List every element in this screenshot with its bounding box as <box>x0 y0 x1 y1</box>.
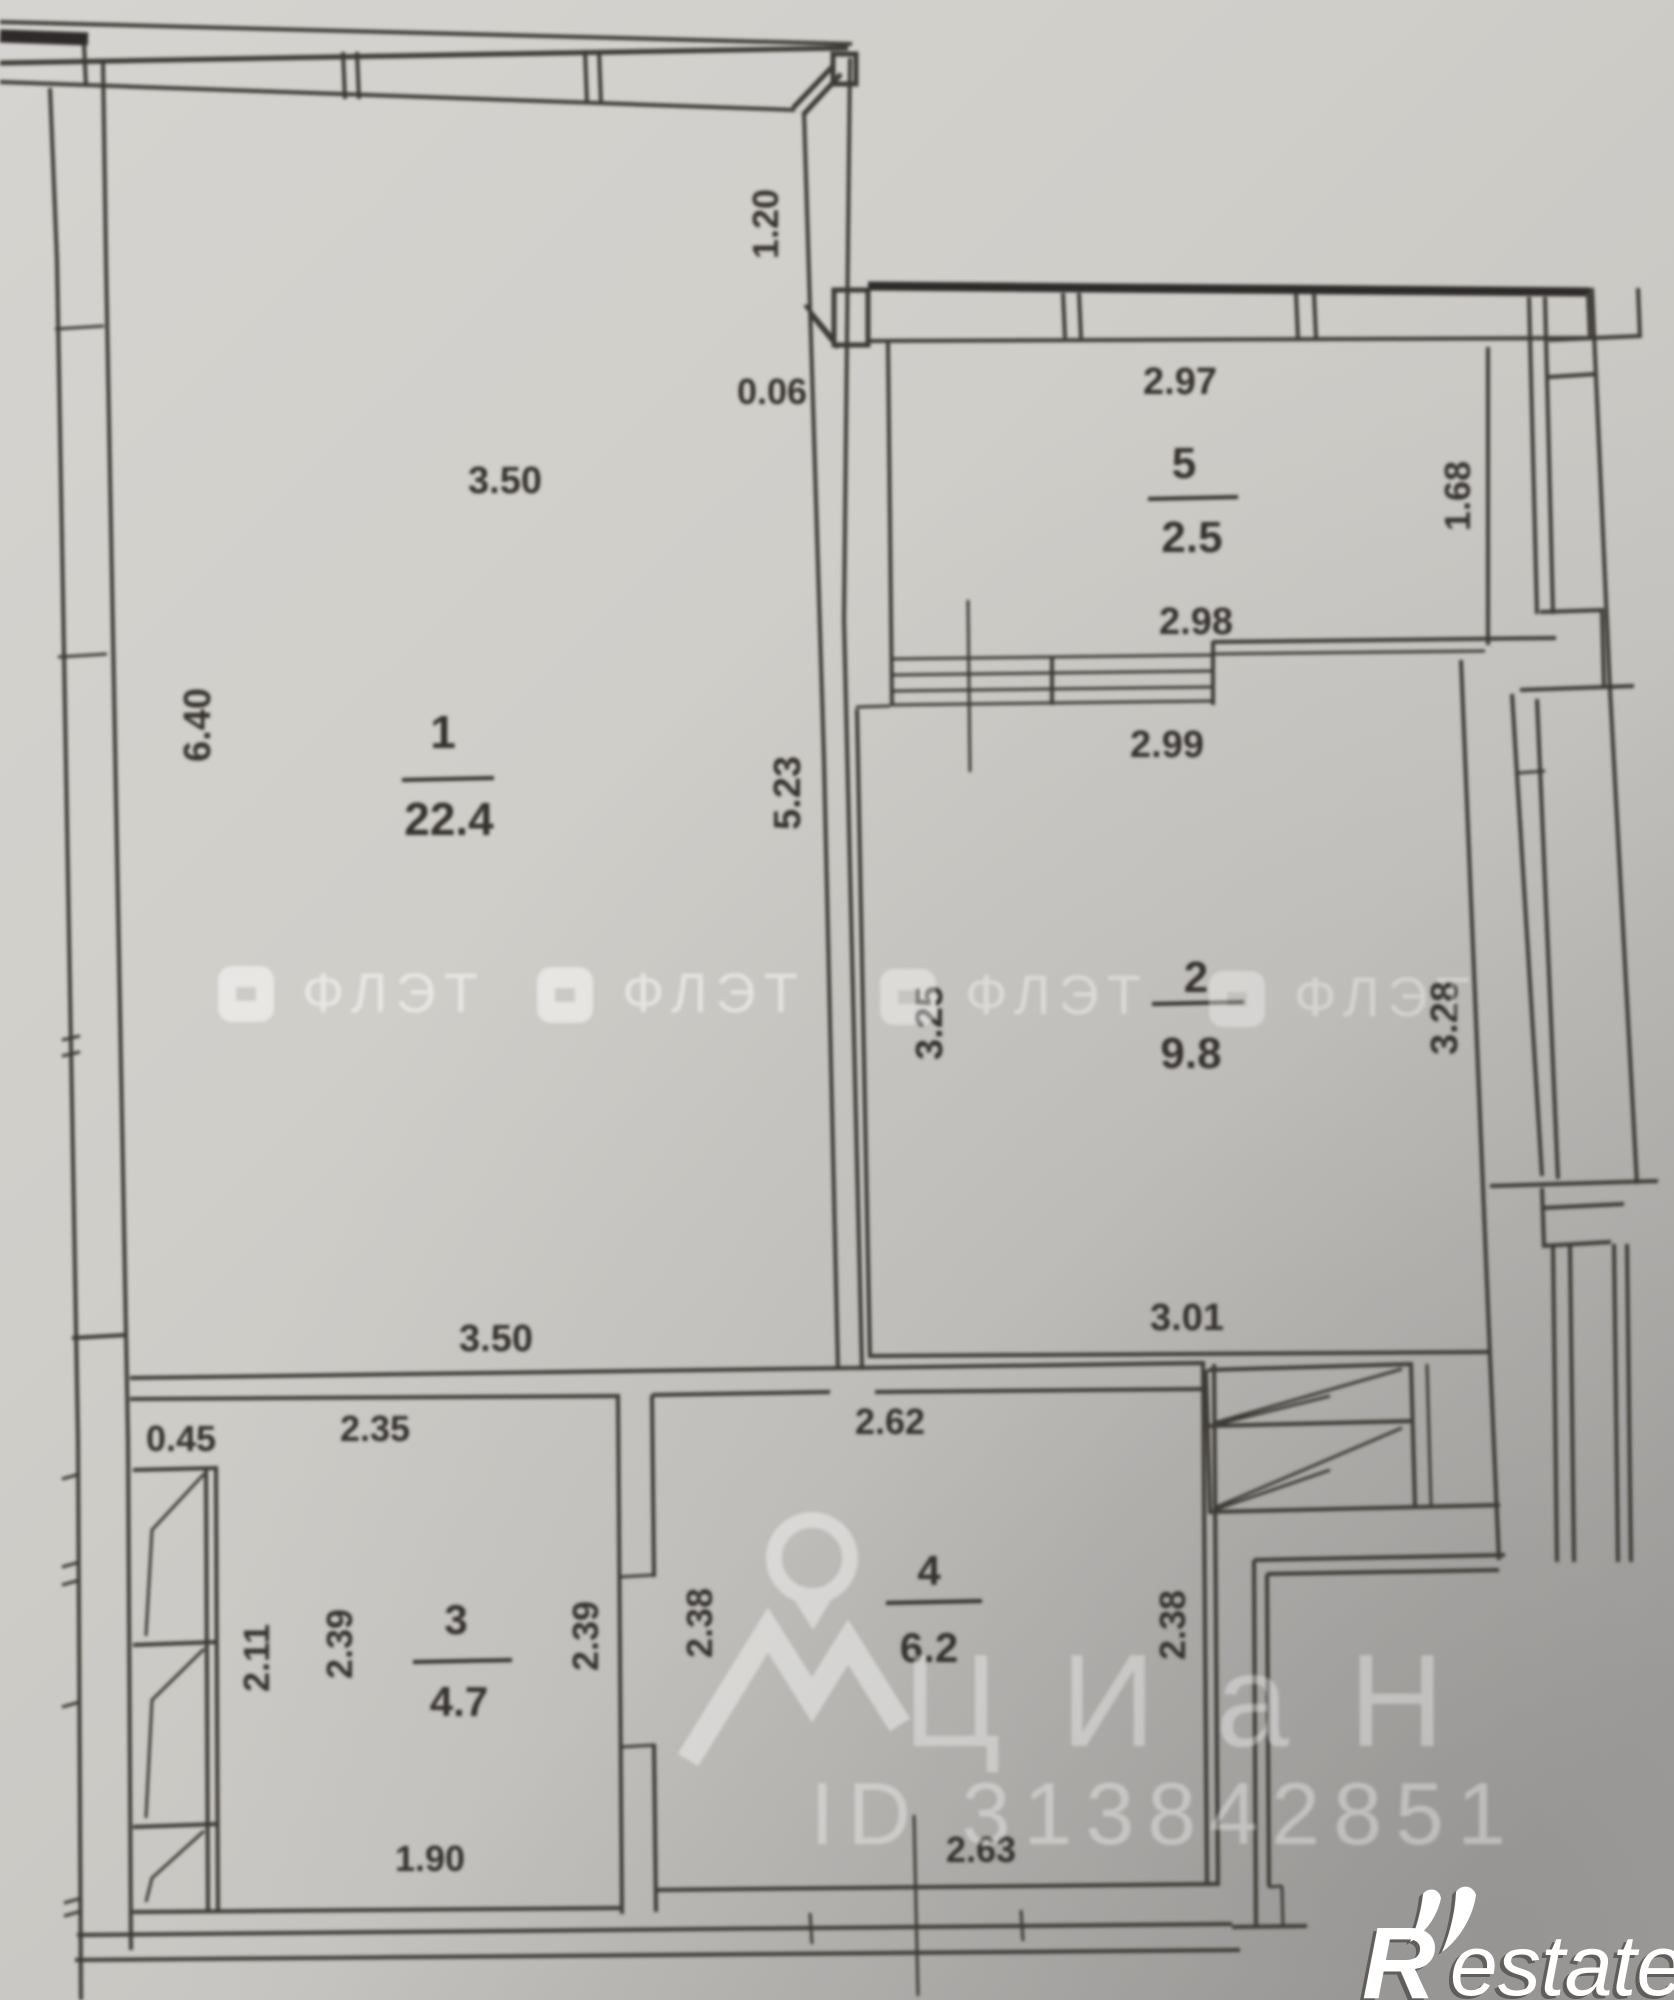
svg-text:ID 313842851: ID 313842851 <box>810 1764 1519 1863</box>
svg-text:22.4: 22.4 <box>404 793 494 845</box>
svg-text:1.20: 1.20 <box>745 189 786 259</box>
svg-text:ФЛЭТ: ФЛЭТ <box>1294 965 1478 1028</box>
svg-text:3: 3 <box>444 1596 467 1643</box>
svg-text:2.5: 2.5 <box>1161 513 1222 562</box>
svg-text:3.50: 3.50 <box>459 1318 533 1360</box>
svg-text:ФЛЭТ: ФЛЭТ <box>622 961 806 1024</box>
svg-text:5.23: 5.23 <box>767 756 809 830</box>
svg-text:estate: estate <box>1450 1918 1674 2000</box>
svg-text:2.99: 2.99 <box>1130 724 1204 766</box>
svg-text:ФЛЭТ: ФЛЭТ <box>302 961 486 1024</box>
svg-text:0.06: 0.06 <box>737 371 807 412</box>
svg-text:2.97: 2.97 <box>1143 361 1217 403</box>
svg-text:2.62: 2.62 <box>855 1401 925 1442</box>
svg-text:ЦИаН: ЦИаН <box>903 1627 1504 1774</box>
svg-text:2.39: 2.39 <box>319 1609 360 1679</box>
svg-text:4: 4 <box>917 1547 941 1594</box>
svg-text:R: R <box>1362 1906 1436 2000</box>
svg-text:ФЛЭТ: ФЛЭТ <box>965 963 1149 1026</box>
svg-text:9.8: 9.8 <box>1160 1029 1221 1078</box>
svg-text:6.40: 6.40 <box>177 688 219 762</box>
svg-text:1.90: 1.90 <box>395 1838 465 1879</box>
svg-text:2.38: 2.38 <box>679 1588 720 1658</box>
svg-text:2.11: 2.11 <box>236 1624 277 1692</box>
svg-text:2.35: 2.35 <box>340 1408 410 1449</box>
svg-text:3.50: 3.50 <box>468 460 542 502</box>
svg-text:5: 5 <box>1172 439 1196 488</box>
svg-text:3.01: 3.01 <box>1150 1297 1224 1339</box>
svg-text:1: 1 <box>430 706 456 758</box>
svg-text:4.7: 4.7 <box>430 1678 488 1725</box>
svg-text:2: 2 <box>1184 953 1208 1002</box>
svg-text:2.98: 2.98 <box>1159 601 1233 643</box>
svg-text:1.68: 1.68 <box>1437 461 1478 531</box>
svg-text:0.45: 0.45 <box>146 1418 216 1459</box>
svg-text:2.39: 2.39 <box>565 1601 606 1671</box>
